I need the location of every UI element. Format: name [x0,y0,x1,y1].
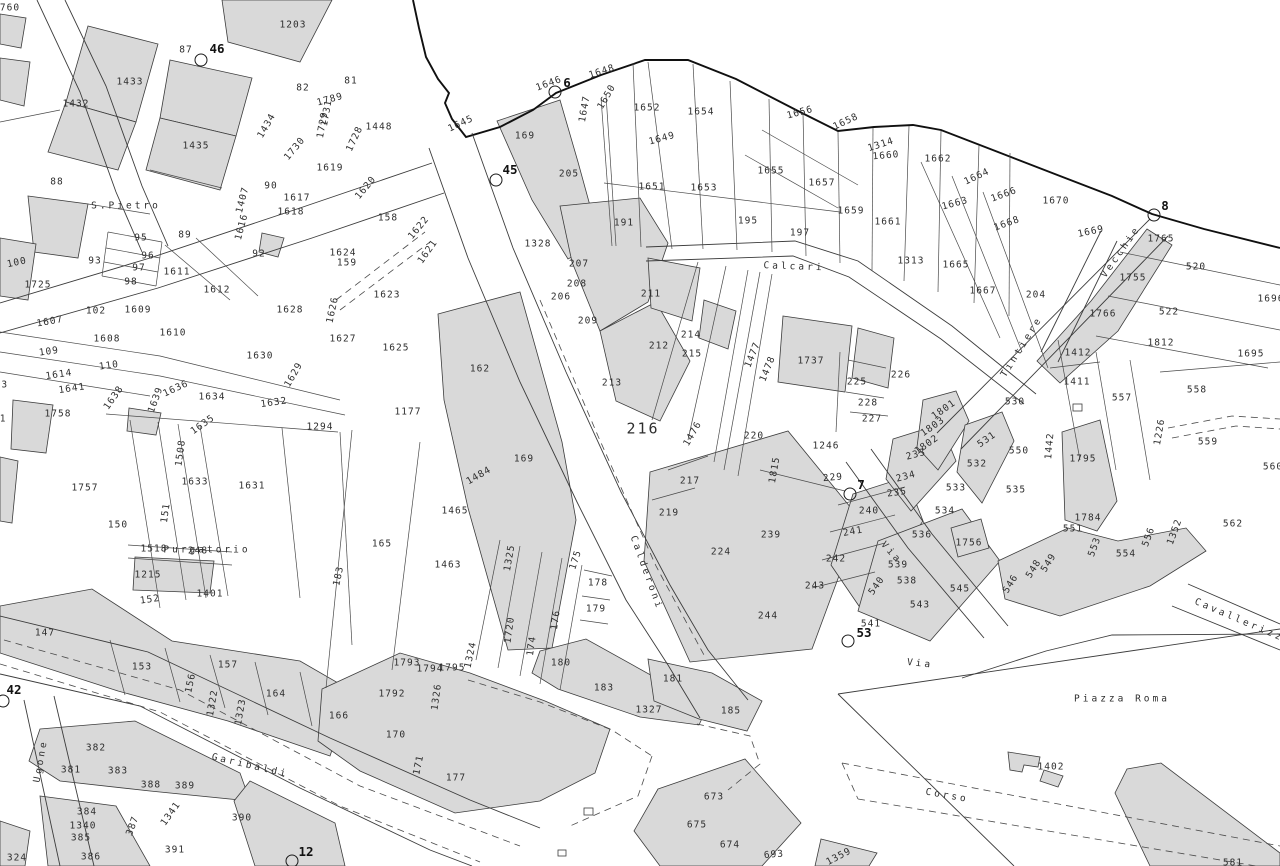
parcel-label-1766: 1766 [1090,309,1117,319]
parcel-label-1633: 1633 [182,477,209,487]
parcel-label-208: 208 [567,279,587,289]
parcel-label-100: 100 [6,256,28,269]
parcel-label-206: 206 [551,292,571,302]
parcel-label-1478: 1478 [759,355,778,383]
parcel-label-533: 533 [946,483,966,493]
parcel-label-157: 157 [218,660,238,670]
parcel-label-177: 177 [446,773,466,783]
parcel-label-1402: 1402 [1038,762,1065,772]
parcel-label-384: 384 [77,807,97,817]
parcel-label-1784: 1784 [1075,513,1102,523]
parcel-label-242: 242 [826,554,846,564]
parcel-label-1765: 1765 [1148,234,1175,244]
parcel-label-1668: 1668 [993,215,1022,233]
parcel-label-158: 158 [378,213,398,223]
parcel-label-88: 88 [50,177,63,187]
parcel-label-1448: 1448 [366,122,393,132]
parcel-label-551: 551 [1063,524,1083,534]
parcel-label-1630: 1630 [247,351,274,361]
parcel-label-1639: 1639 [147,386,165,415]
parcel-label-143: 143 [0,380,8,390]
parcel-label-1725: 1725 [25,280,52,290]
parcel-label-1669: 1669 [1077,225,1105,240]
control-point-label-8: 8 [1161,200,1169,213]
parcel-label-1433: 1433 [117,77,144,87]
control-point-icon-6 [549,86,562,99]
parcel-label-1635: 1635 [189,413,216,436]
parcel-label-1612: 1612 [204,285,231,295]
parcel-label-536: 536 [912,530,932,540]
parcel-label-383: 383 [108,766,128,776]
parcel-label-1341: 1341 [159,800,182,827]
parcel-label-159: 159 [337,258,357,268]
parcel-label-557: 557 [1112,393,1132,403]
parcel-label-1476: 1476 [682,420,704,448]
parcel-label-391: 391 [165,845,185,855]
control-point-label-45: 45 [502,164,517,177]
parcel-label-1662: 1662 [925,154,952,164]
street-label-tintiere: Tintiere [999,315,1044,379]
parcel-label-165: 165 [372,539,392,549]
street-label-via: Via [906,658,933,670]
parcel-label-1627: 1627 [330,334,357,344]
parcel-label-1621: 1621 [416,238,439,265]
parcel-label-169: 169 [515,131,535,141]
parcel-label-169: 169 [514,454,534,464]
parcel-label-538: 538 [897,576,917,586]
cadastral-map[interactable]: 7601203871433143282811789173117291728144… [0,0,1280,866]
parcel-label-1729: 1729 [316,111,330,139]
parcel-label-1634: 1634 [199,392,226,402]
parcel-label-381: 381 [61,765,81,775]
parcel-label-386: 386 [81,852,101,862]
parcel-label-212: 212 [649,341,669,351]
parcel-label-531: 531 [976,430,998,449]
parcel-label-1657: 1657 [809,178,836,188]
parcel-label-207: 207 [569,259,589,269]
parcel-label-532: 532 [967,459,987,469]
parcel-label-97: 97 [132,263,145,273]
parcel-label-1628: 1628 [277,305,304,315]
parcel-label-1177: 1177 [395,407,422,417]
parcel-label-1508: 1508 [174,439,187,467]
parcel-label-181: 181 [663,674,683,684]
parcel-label-213: 213 [602,378,622,388]
parcel-label-581: 581 [1223,858,1243,866]
parcel-label-1653: 1653 [691,183,718,193]
parcel-label-98: 98 [124,277,137,287]
map-labels-layer: 7601203871433143282811789173117291728144… [0,0,1280,866]
parcel-label-1313: 1313 [898,256,925,266]
parcel-label-1463: 1463 [435,560,462,570]
parcel-label-1652: 1652 [634,103,661,113]
parcel-label-174: 174 [526,635,538,656]
parcel-label-1667: 1667 [970,286,997,296]
parcel-label-534: 534 [935,506,955,516]
parcel-label-1658: 1658 [832,112,860,132]
parcel-label-1656: 1656 [786,105,814,121]
parcel-label-387: 387 [125,815,141,837]
parcel-label-388: 388 [141,780,161,790]
parcel-label-1618: 1618 [278,207,305,217]
parcel-label-382: 382 [86,743,106,753]
parcel-label-1636: 1636 [162,379,190,399]
parcel-label-214: 214 [681,330,701,340]
parcel-label-1326: 1326 [430,683,443,711]
parcel-label-1401: 1401 [197,589,224,599]
parcel-label-1617: 1617 [284,193,311,203]
parcel-label-243: 243 [805,581,825,591]
parcel-label-95: 95 [134,233,147,243]
parcel-label-1795: 1795 [1070,454,1097,464]
control-point-label-7: 7 [857,479,865,492]
parcel-label-1623: 1623 [374,290,401,300]
parcel-label-1608: 1608 [94,334,121,344]
parcel-label-1648: 1648 [588,63,617,80]
parcel-label-96: 96 [141,251,154,261]
street-label-s-pietro: S.Pietro [91,201,161,211]
parcel-label-211: 211 [641,289,661,299]
parcel-label-1812: 1812 [1148,338,1175,348]
control-point-icon-7 [844,488,857,501]
parcel-label-204: 204 [1026,290,1046,300]
parcel-label-109: 109 [38,346,59,358]
parcel-label-1614: 1614 [45,368,73,381]
parcel-label-164: 164 [266,689,286,699]
parcel-label-220: 220 [744,431,764,441]
parcel-label-1647: 1647 [578,95,592,123]
parcel-label-1638: 1638 [102,384,125,411]
parcel-label-1751: 1751 [0,414,6,424]
parcel-label-217: 217 [680,476,700,486]
street-label-cavallerizza: Cavallerizza [1193,597,1280,647]
parcel-label-1730: 1730 [283,136,308,163]
parcel-label-1663: 1663 [941,196,969,212]
control-point-icon-12 [286,855,299,866]
parcel-label-191: 191 [614,218,634,228]
parcel-label-1631: 1631 [239,481,266,491]
parcel-label-1737: 1737 [798,356,825,366]
parcel-label-1327: 1327 [636,705,663,715]
parcel-label-1650: 1650 [596,83,618,111]
parcel-label-1649: 1649 [648,131,676,147]
parcel-label-559: 559 [1198,437,1218,447]
parcel-label-195: 195 [738,216,758,226]
parcel-label-549: 549 [1040,552,1059,574]
parcel-label-1328: 1328 [525,239,552,249]
parcel-label-673: 673 [704,792,724,802]
parcel-label-522: 522 [1159,307,1179,317]
control-point-label-12: 12 [298,846,313,859]
street-label-calcari: Calcari [763,261,824,273]
parcel-label-550: 550 [1009,446,1029,456]
parcel-label-556: 556 [1141,526,1157,548]
street-label-garibaldi: Garibaldi [211,753,290,780]
parcel-label-248: 248 [188,546,208,556]
parcel-label-1442: 1442 [1044,432,1056,460]
parcel-label-1645: 1645 [447,114,475,134]
parcel-label-185: 185 [721,706,741,716]
parcel-label-1609: 1609 [125,305,152,315]
parcel-label-1246: 1246 [813,441,840,451]
parcel-label-1641: 1641 [58,382,86,395]
parcel-label-389: 389 [175,781,195,791]
parcel-label-1616: 1616 [234,213,250,241]
parcel-label-1695: 1695 [1238,349,1265,359]
parcel-label-147: 147 [35,628,55,638]
parcel-label-1412: 1412 [1065,348,1092,358]
control-point-icon-8 [1148,209,1161,222]
parcel-label-151: 151 [160,502,172,523]
parcel-label-546: 546 [1002,573,1021,595]
parcel-label-179: 179 [586,604,606,614]
parcel-label-1728: 1728 [345,125,365,153]
street-label-corso: Corso [925,788,970,805]
control-point-icon-46 [195,54,208,67]
parcel-label-520: 520 [1186,262,1206,272]
parcel-label-1607: 1607 [36,315,64,329]
parcel-label-1484: 1484 [465,465,493,487]
parcel-label-219: 219 [659,508,679,518]
parcel-label-90: 90 [264,181,277,191]
parcel-label-229: 229 [823,472,844,483]
parcel-label-225: 225 [847,377,867,387]
parcel-label-183: 183 [594,683,614,693]
parcel-label-390: 390 [232,813,252,823]
parcel-label-152: 152 [139,594,160,606]
parcel-label-166: 166 [329,711,349,721]
parcel-label-1226: 1226 [1153,418,1167,446]
parcel-label-153: 153 [132,662,152,672]
parcel-label-1203: 1203 [280,20,307,30]
parcel-label-93: 93 [88,256,101,266]
parcel-label-324: 324 [7,853,27,863]
parcel-label-323: 323 [0,822,1,844]
parcel-label-1620: 1620 [354,175,379,202]
parcel-label-1792: 1792 [379,689,406,699]
parcel-label-183: 183 [332,565,345,587]
parcel-label-150: 150 [108,520,128,530]
street-label-calderoni: Calderoni [628,534,664,611]
parcel-label-197: 197 [790,228,810,238]
parcel-label-693: 693 [764,849,785,860]
parcel-label-1756: 1756 [956,538,983,548]
parcel-label-1322: 1322 [206,689,220,717]
parcel-label-178: 178 [588,578,608,588]
parcel-label-675: 675 [687,820,707,830]
parcel-label-228: 228 [858,398,878,408]
parcel-label-1359: 1359 [825,846,853,866]
parcel-label-554: 554 [1116,549,1136,559]
parcel-label-82: 82 [296,83,309,93]
parcel-label-235: 235 [886,487,907,499]
parcel-label-545: 545 [950,584,970,594]
parcel-label-216: 216 [626,422,659,437]
parcel-label-1622: 1622 [407,215,432,242]
parcel-label-240: 240 [859,506,879,516]
parcel-label-171: 171 [412,754,425,776]
parcel-label-1651: 1651 [639,182,666,192]
control-point-label-53: 53 [856,627,871,640]
parcel-label-1670: 1670 [1043,196,1070,206]
parcel-label-1325: 1325 [503,544,517,572]
parcel-label-170: 170 [386,730,406,740]
parcel-label-1720: 1720 [503,616,516,644]
parcel-label-1626: 1626 [326,296,341,324]
parcel-label-1654: 1654 [688,107,715,117]
parcel-label-1665: 1665 [943,260,970,270]
parcel-label-1619: 1619 [317,163,344,173]
parcel-label-1477: 1477 [744,341,763,369]
parcel-label-1655: 1655 [758,166,785,176]
control-point-label-42: 42 [6,684,21,697]
parcel-label-1432: 1432 [63,99,90,109]
parcel-label-227: 227 [862,414,882,424]
parcel-label-89: 89 [178,230,191,240]
control-point-icon-53 [842,635,855,648]
street-label-piazza-roma: Piazza Roma [1074,694,1170,704]
parcel-label-224: 224 [711,547,731,557]
parcel-label-760: 760 [0,3,20,13]
parcel-label-1755: 1755 [1120,273,1147,283]
parcel-label-1434: 1434 [256,112,278,140]
parcel-label-1815: 1815 [768,456,782,484]
parcel-label-1758: 1758 [45,409,72,419]
parcel-label-1411: 1411 [1064,377,1091,387]
parcel-label-543: 543 [910,600,930,610]
parcel-label-558: 558 [1187,385,1207,395]
control-point-label-46: 46 [209,43,224,56]
parcel-label-1661: 1661 [875,217,902,227]
parcel-label-1323: 1323 [234,698,248,726]
parcel-label-244: 244 [758,611,778,621]
parcel-label-540: 540 [867,575,886,597]
parcel-label-175: 175 [568,549,583,571]
parcel-label-1465: 1465 [442,506,469,516]
parcel-label-162: 162 [470,364,490,374]
parcel-label-1435: 1435 [183,141,210,151]
parcel-label-1625: 1625 [383,343,410,353]
parcel-label-385: 385 [71,833,91,843]
parcel-label-92: 92 [252,249,265,259]
parcel-label-215: 215 [682,349,702,359]
parcel-label-234: 234 [895,470,917,484]
parcel-label-674: 674 [720,840,740,850]
control-point-icon-45 [490,174,503,187]
parcel-label-1666: 1666 [990,186,1019,204]
parcel-label-176: 176 [550,609,562,630]
parcel-label-1611: 1611 [164,267,191,277]
parcel-label-102: 102 [86,306,106,316]
parcel-label-239: 239 [761,530,781,540]
parcel-label-1664: 1664 [963,167,991,187]
parcel-label-1632: 1632 [260,396,288,409]
parcel-label-1324: 1324 [464,641,479,669]
parcel-label-1352: 1352 [1166,518,1184,547]
parcel-label-209: 209 [578,316,598,326]
parcel-label-1407: 1407 [235,186,251,214]
control-point-label-6: 6 [563,77,571,90]
parcel-label-1294: 1294 [307,422,334,432]
parcel-label-1629: 1629 [283,361,305,389]
parcel-label-535: 535 [1006,485,1026,495]
parcel-label-1696: 1696 [1258,294,1280,304]
parcel-label-205: 205 [559,169,579,179]
parcel-label-1340: 1340 [70,821,97,831]
parcel-label-560: 560 [1263,462,1280,472]
parcel-label-1757: 1757 [72,483,99,493]
parcel-label-110: 110 [98,360,119,372]
parcel-label-562: 562 [1223,519,1243,529]
parcel-label-87: 87 [179,45,192,55]
parcel-label-81: 81 [344,76,357,86]
parcel-label-553: 553 [1087,536,1103,558]
parcel-label-1610: 1610 [160,328,187,338]
parcel-label-530: 530 [1005,397,1025,407]
parcel-label-233: 233 [905,448,927,462]
parcel-label-1659: 1659 [838,206,865,216]
street-label-ugone: Ugone [33,739,50,784]
parcel-label-1795: 1795 [439,663,466,673]
parcel-label-156: 156 [184,672,197,694]
parcel-label-241: 241 [842,526,864,539]
parcel-label-180: 180 [551,658,571,668]
parcel-label-226: 226 [891,370,911,380]
parcel-label-1215: 1215 [135,570,162,580]
